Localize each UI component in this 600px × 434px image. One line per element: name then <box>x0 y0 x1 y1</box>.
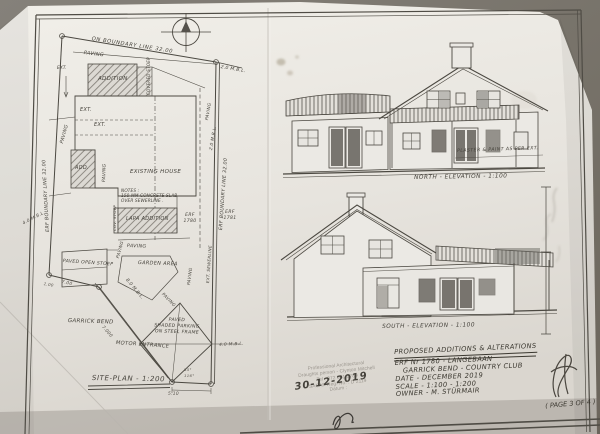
dim-7-00: 7.00 <box>61 280 73 287</box>
lapa-addition-label: LAPA ADDITION <box>126 217 169 223</box>
paving-label-lapa: PAVING <box>127 244 147 250</box>
paved-open-stoep-label: PAVED OPEN STOEP <box>63 259 114 268</box>
north-elevation-label: NORTH - ELEVATION - 1:100 <box>414 173 508 181</box>
scanned-drawing-sheet: ON BOUNDARY LINE 32.00 PAVING EXT. 2.0 M… <box>0 0 600 434</box>
paving-label-garden-left: PAVING <box>117 241 126 259</box>
ext-label-2: EXT. <box>94 123 106 129</box>
notes-line3: OVER SEWERLINE . <box>121 200 164 205</box>
motor-entrance-label: MOTOR ENTRANCE <box>116 341 170 351</box>
dim-5-10: 5.10 <box>168 392 179 397</box>
dim-116: 116° <box>184 374 195 378</box>
dim-55: 55° <box>184 368 192 372</box>
street-name-label: GARRICK BEND <box>68 318 114 326</box>
page-number-note: ( PAGE 3 OF 4 ) <box>545 399 596 410</box>
paving-label-left: PAVING <box>60 124 70 144</box>
label-layer: ON BOUNDARY LINE 32.00 PAVING EXT. 2.0 M… <box>0 0 600 434</box>
building-line-2m-top: 2.0 M.B.L. <box>220 65 246 74</box>
left-boundary-label: ERF BOUNDARY LINE 32.00 <box>42 159 51 232</box>
sewerline-label: EXT. SEWERLINE <box>206 245 213 283</box>
building-line-2m-right: 2.0 M.B.L. <box>210 126 219 151</box>
south-elevation-label: SOUTH - ELEVATION - 1:100 <box>382 322 475 330</box>
paving-label-right: PAVING <box>206 103 214 121</box>
paving-label-diamond: PAVING <box>160 293 176 309</box>
paving-label-top: PAVING <box>83 51 104 59</box>
dim-7-000: 7.000 <box>100 325 113 339</box>
parking-line3: ON STEEL FRAME <box>148 329 206 336</box>
building-line-8m: 8.0 M.B.L. <box>124 278 144 301</box>
paving-label-mid: PAVING <box>102 164 108 183</box>
addition-label: ADDITION <box>98 76 128 82</box>
erf-1781-label: ERF 1781 <box>221 210 239 221</box>
cov-stoep-label: COV. STOEP <box>113 205 117 231</box>
site-plan-title: SITE-PLAN - 1:200 <box>92 374 165 383</box>
paving-label-right2: PAVING <box>188 267 195 285</box>
building-line-4m-left: 4.0 M.B.L. <box>22 210 46 226</box>
title-block: PROPOSED ADDITIONS & ALTERATIONS ERF Nr … <box>394 343 539 399</box>
covered-stoep-label: COVERED STOEP <box>147 57 152 95</box>
add-label: ADD. <box>75 166 89 172</box>
existing-house-label: EXISTING HOUSE <box>130 169 181 175</box>
erf-1780-label: ERF 1780 <box>181 213 199 224</box>
ext-label-arrow: EXT. <box>57 67 67 72</box>
ext-label-1: EXT. <box>80 108 92 114</box>
dim-1-00: 1.00 <box>43 282 54 288</box>
finish-note: PLASTER & PAINT AS PER EXT. <box>457 146 538 154</box>
building-line-4m-right: 4.0 M.B.L. <box>219 342 244 348</box>
garden-area-label: GARDEN AREA <box>138 261 178 268</box>
